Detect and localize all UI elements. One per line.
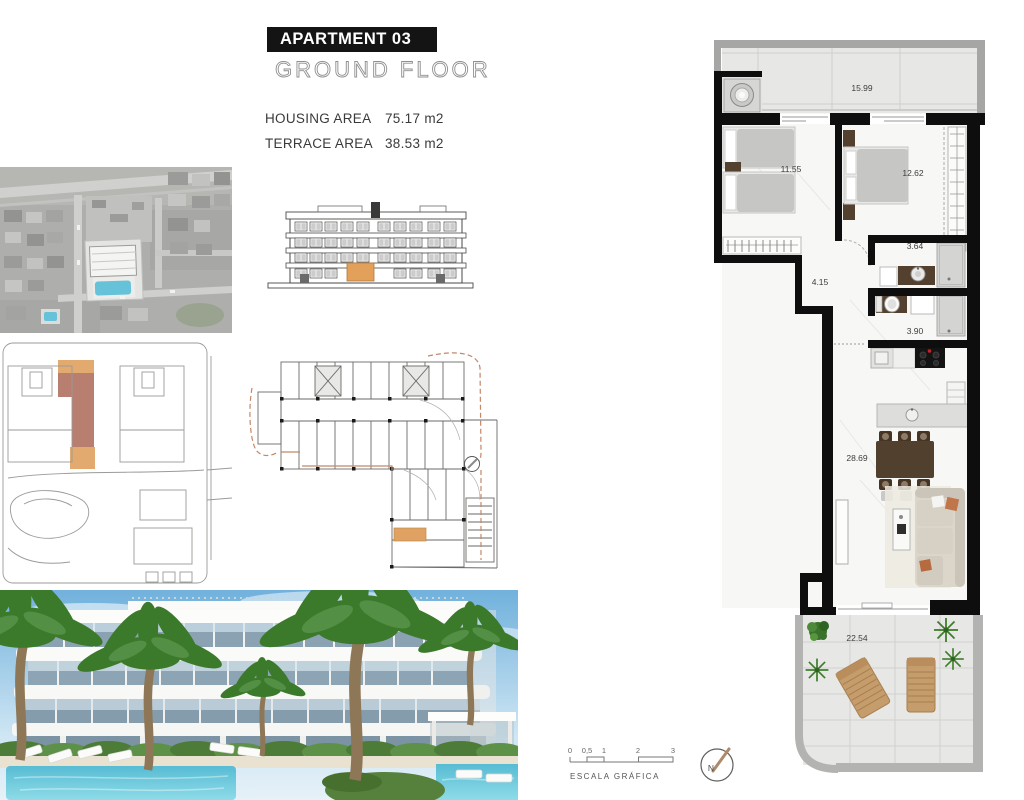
floor-subtitle: GROUND FLOOR [270, 52, 490, 86]
double-bed [844, 147, 908, 204]
compass-icon: N [701, 749, 733, 781]
garage-unit-outline [250, 353, 481, 560]
bottom-terrace: 22.54 [803, 615, 973, 765]
plant-bush [807, 621, 829, 641]
scale-label: ESCALA GRÁFICA [570, 772, 660, 781]
garage-highlighted-parking [394, 528, 426, 541]
map-secondary-pool [44, 312, 57, 321]
shower-1 [937, 243, 965, 287]
stove-icon [915, 348, 945, 368]
site-plan [0, 340, 232, 588]
twin-bed-1 [723, 127, 795, 168]
washing-machine-icon [731, 84, 754, 107]
site-buildings [8, 366, 204, 582]
graphic-scale: 0 0,5 1 2 3 ESCALA GRÁFICA [568, 746, 675, 781]
floor-plan: 15.99 [700, 35, 1000, 780]
shower-2 [937, 294, 965, 336]
garage-structure [258, 362, 497, 568]
terrace-area-value: 38.53 m2 [385, 136, 444, 158]
sun-lounger-2 [907, 658, 935, 712]
building-elevation [240, 185, 500, 310]
scale-tick-0: 0 [568, 746, 572, 755]
brochure-sheet: APARTMENT 03 GROUND FLOOR HOUSING AREA 7… [0, 0, 1024, 800]
housing-area-label: HOUSING AREA [265, 111, 385, 133]
roof-stack [371, 202, 380, 218]
sofa [915, 488, 965, 587]
garage-rotation-symbol [465, 457, 480, 472]
room-area-label: 12.62 [902, 168, 924, 178]
room-area-label: 3.90 [907, 326, 924, 336]
map-highlight-site [85, 239, 143, 301]
roof-railing [318, 206, 362, 212]
scale-tick-2: 2 [636, 746, 640, 755]
aerial-map [0, 167, 232, 333]
kitchen-island [877, 404, 968, 427]
floor-subtitle-text: GROUND FLOOR [275, 57, 490, 82]
highlighted-unit [347, 263, 374, 281]
scale-and-compass: 0 0,5 1 2 3 ESCALA GRÁFICA N [530, 735, 760, 797]
housing-area-value: 75.17 m2 [385, 111, 444, 133]
scale-tick-1: 1 [602, 746, 606, 755]
garage-plan [240, 340, 502, 592]
twin-bed-2 [723, 172, 795, 213]
terrace-area-label: TERRACE AREA [265, 136, 385, 158]
nightstand [843, 130, 855, 147]
toilet-icon [876, 296, 900, 312]
north-label: N [708, 763, 714, 773]
pool-left [6, 766, 236, 800]
site-highlight-unit [58, 360, 95, 469]
apartment-title: APARTMENT 03 [267, 27, 437, 52]
building-photo [0, 590, 518, 800]
apartment-title-text: APARTMENT 03 [280, 30, 411, 48]
elevation-ground-line [268, 283, 473, 288]
site-pool [10, 491, 88, 539]
map-pool [95, 280, 131, 295]
room-area-label: 11.55 [781, 164, 802, 174]
room-area-label: 4.15 [812, 277, 829, 287]
map-green-area [176, 303, 224, 327]
terrace-area-row: TERRACE AREA 38.53 m2 [265, 136, 495, 158]
room-area-label: 28.69 [846, 453, 868, 463]
garage-columns [280, 397, 466, 569]
wardrobe-bedroom-1 [723, 237, 801, 254]
housing-area-row: HOUSING AREA 75.17 m2 [265, 111, 495, 133]
coffee-table [893, 509, 910, 550]
room-area-label: 15.99 [851, 83, 873, 93]
scale-tick-05: 0,5 [582, 746, 592, 755]
tv-sideboard [836, 500, 848, 564]
garage-drive-guides [404, 400, 480, 500]
nightstand [843, 203, 855, 220]
sink-icon [911, 267, 925, 281]
room-area-label: 22.54 [846, 633, 868, 643]
scale-tick-3: 3 [671, 746, 675, 755]
laundry-closet [722, 77, 762, 113]
